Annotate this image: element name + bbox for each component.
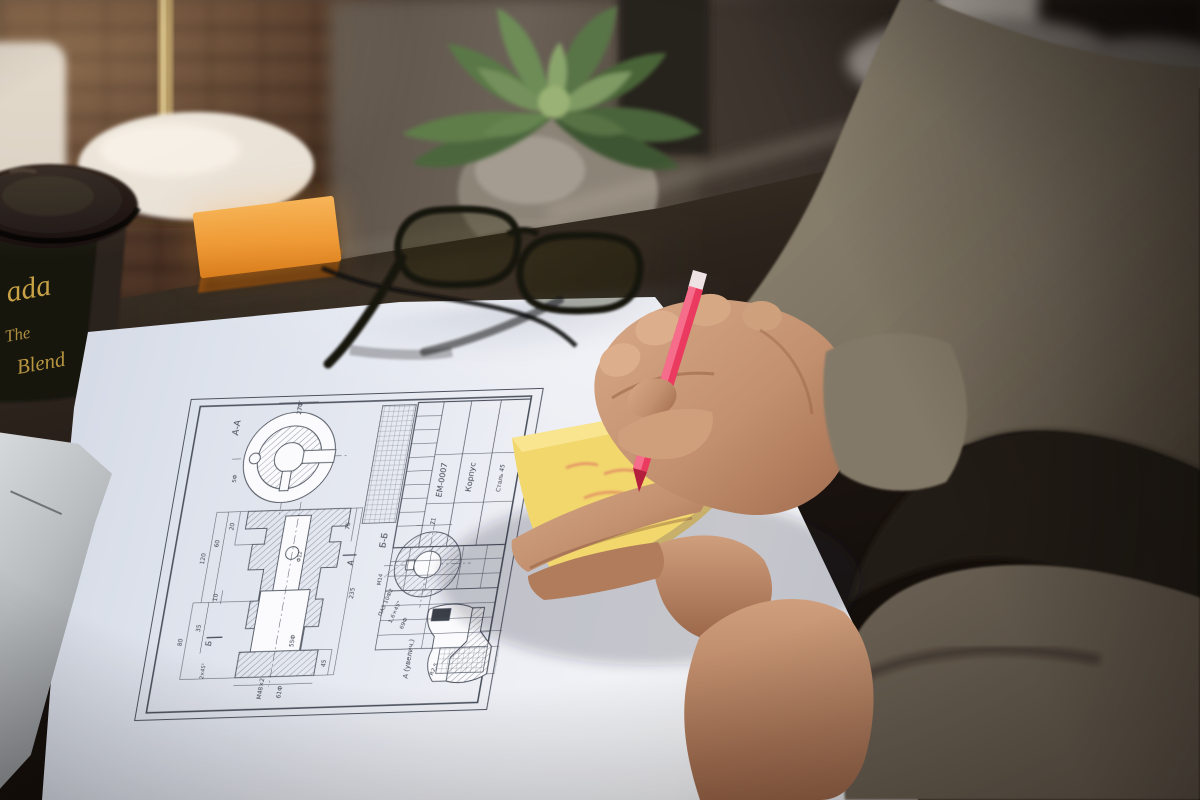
person [0,0,1200,800]
photo-scene: ada The Blend [0,0,1200,800]
